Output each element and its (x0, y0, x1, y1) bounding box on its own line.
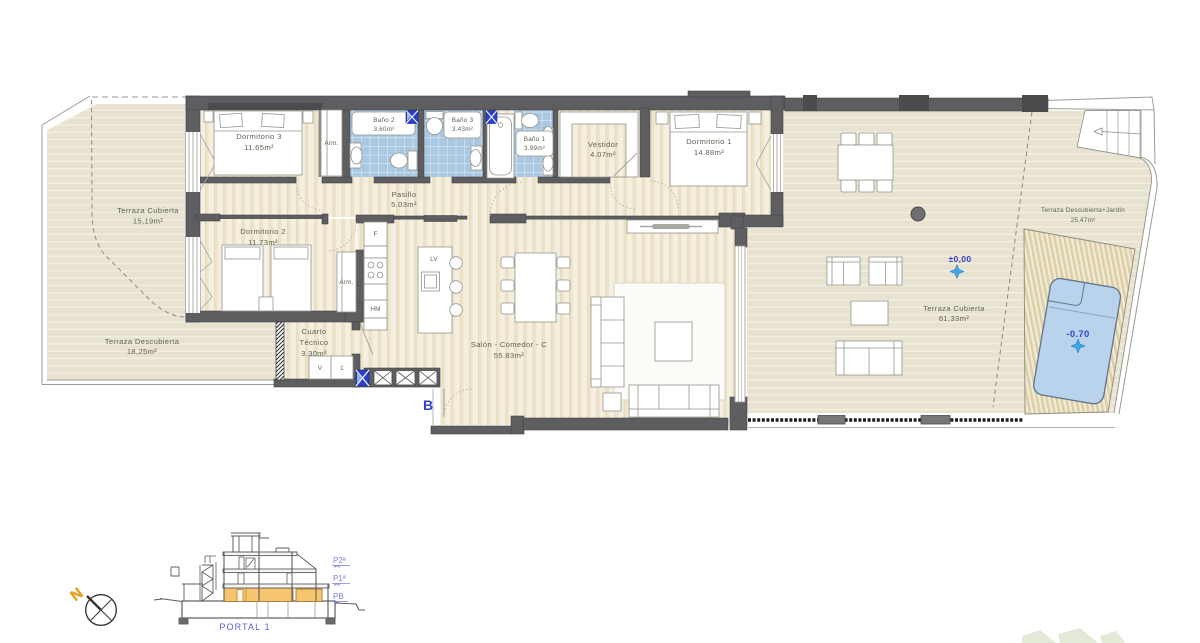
svg-text:Técnico: Técnico (299, 338, 328, 347)
svg-text:Baño 2: Baño 2 (373, 117, 395, 124)
svg-text:P2ª: P2ª (333, 556, 346, 565)
svg-text:3.99m²: 3.99m² (524, 145, 545, 152)
svg-text:Dormitorio 2: Dormitorio 2 (240, 227, 286, 236)
svg-text:LV: LV (430, 256, 438, 263)
svg-text:Terraza Descubierta+Jardín: Terraza Descubierta+Jardín (1041, 207, 1125, 214)
svg-text:Baño 1: Baño 1 (524, 136, 546, 143)
svg-text:1: 1 (340, 365, 344, 372)
svg-text:Terraza Descubierta: Terraza Descubierta (105, 337, 180, 346)
svg-text:Dormitorio 3: Dormitorio 3 (236, 132, 282, 141)
svg-text:HM: HM (370, 306, 380, 313)
svg-text:3.60m²: 3.60m² (373, 126, 394, 133)
svg-text:F: F (373, 231, 377, 238)
svg-text:3.30m²: 3.30m² (301, 349, 327, 358)
svg-text:Arm.: Arm. (324, 140, 338, 147)
svg-text:61,33m²: 61,33m² (939, 314, 969, 323)
svg-text:55.83m²: 55.83m² (494, 351, 524, 360)
svg-text:P1ª: P1ª (333, 574, 346, 583)
svg-text:4.07m²: 4.07m² (590, 150, 616, 159)
svg-text:PORTAL 1: PORTAL 1 (219, 622, 270, 632)
svg-text:V: V (318, 365, 323, 372)
svg-text:Terraza Cubierta: Terraza Cubierta (117, 206, 179, 215)
svg-text:Terraza Cubierta: Terraza Cubierta (923, 304, 985, 313)
svg-text:18,25m²: 18,25m² (127, 347, 157, 356)
svg-text:Salón - Comedor - C: Salón - Comedor - C (471, 340, 547, 349)
svg-text:Dormitorio 1: Dormitorio 1 (686, 137, 732, 146)
svg-text:Pasillo: Pasillo (392, 190, 417, 199)
svg-text:11.73m²: 11.73m² (248, 238, 278, 247)
svg-text:Arm.: Arm. (339, 279, 353, 286)
svg-text:25,47m²: 25,47m² (1071, 217, 1096, 224)
svg-text:14.88m²: 14.88m² (694, 148, 724, 157)
svg-text:11.65m²: 11.65m² (244, 143, 274, 152)
svg-text:±0,00: ±0,00 (949, 254, 972, 264)
svg-text:Vestidor: Vestidor (588, 140, 618, 149)
svg-text:B: B (423, 397, 433, 413)
svg-text:PB: PB (333, 592, 344, 601)
svg-text:Cuarto: Cuarto (302, 327, 327, 336)
svg-text:Baño 3: Baño 3 (452, 117, 474, 124)
svg-text:3.43m²: 3.43m² (452, 126, 473, 133)
svg-text:15,19m²: 15,19m² (133, 217, 163, 226)
svg-text:5.03m²: 5.03m² (391, 200, 417, 209)
